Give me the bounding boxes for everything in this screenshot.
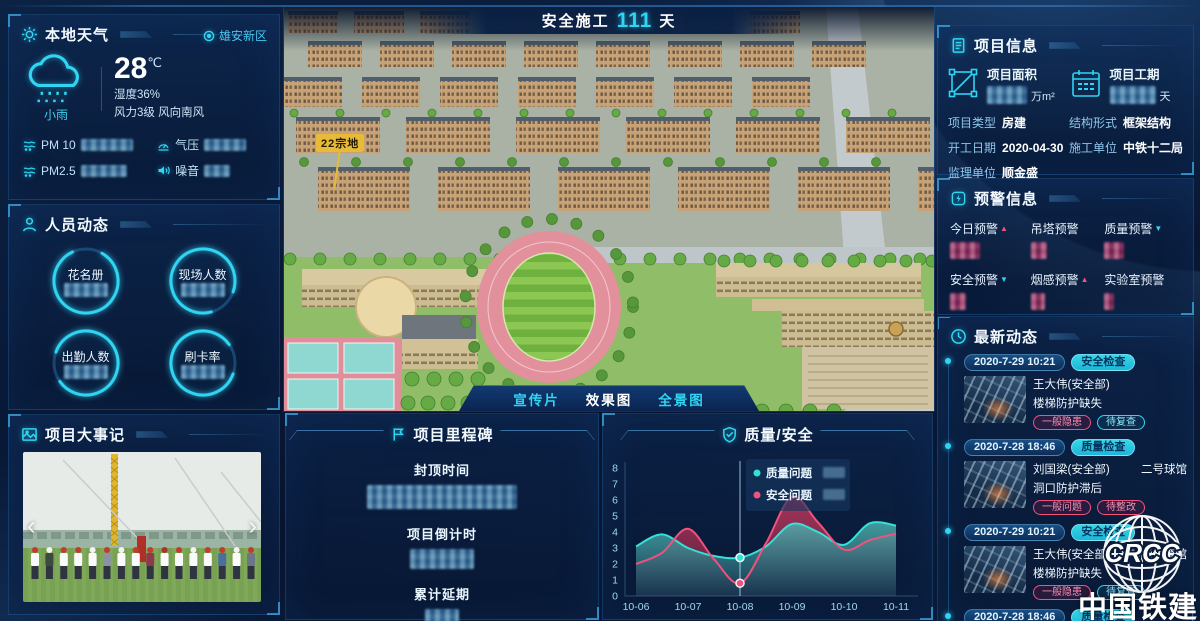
header-wing (620, 430, 715, 440)
news-entry[interactable]: 2020-7-29 10:21安全检查 王大伟(安全部)多功能体育馆 楼梯防护缺… (964, 524, 1187, 600)
alert-lab: 实验室预警 (1104, 271, 1181, 310)
panel-local-weather: 本地天气 雄安新区 小雨 28℃ 湿度36% (8, 14, 280, 200)
issue: 洞口防护滞后 (1033, 480, 1187, 496)
blurred-value (950, 242, 980, 259)
ring-swipe-rate: 刷卡率 (164, 324, 242, 402)
site-render-view[interactable]: 22宗地 安全施工 111 天 宣传片 效果图 全景图 (283, 6, 935, 412)
particles-icon (23, 164, 36, 177)
svg-text:5: 5 (612, 511, 618, 523)
news-entry[interactable]: 2020-7-28 18:46质量检查 刘国梁(安全部) (964, 609, 1187, 621)
panel-title: 质量/安全 (744, 424, 813, 445)
humidity: 湿度36% (114, 87, 204, 105)
metric-pm10: PM 10 (23, 136, 147, 153)
calendar-icon (1069, 66, 1103, 100)
news-entry[interactable]: 2020-7-28 18:46质量检查 刘国梁(安全部)二号球馆 洞口防护滞后 … (964, 439, 1187, 515)
panel-milestone: 项目里程碑 封顶时间 项目倒计时 累计延期 (285, 413, 599, 620)
severity-tag: 一般隐患 (1033, 585, 1091, 600)
metric-pressure: 气压 (157, 136, 265, 153)
inspector: 王大伟(安全部) (1033, 376, 1110, 392)
speaker-icon (157, 164, 170, 177)
panel-title: 项目信息 (974, 35, 1038, 56)
svg-text:质量问题: 质量问题 (766, 466, 812, 480)
alert-smoke: 烟感预警▲ (1031, 271, 1101, 310)
panel-quality-safety: 质量/安全 01234567810-0610-0710-0810-0910-10… (602, 413, 933, 620)
header-line (189, 434, 267, 435)
shield-check-icon (721, 426, 738, 443)
area-icon (946, 66, 980, 100)
safety-days-banner: 安全施工 111 天 (419, 7, 799, 34)
person-icon (21, 216, 38, 233)
header-wing (820, 430, 915, 440)
svg-text:1: 1 (612, 575, 618, 587)
location: 二号球馆 (1141, 461, 1187, 477)
news-entry[interactable]: 2020-7-29 10:21安全检查 王大伟(安全部) 楼梯防护缺失 一般隐患… (964, 354, 1187, 430)
location-pin-icon (203, 30, 215, 42)
inspector: 王大伟(安全部) (1033, 546, 1110, 562)
svg-text:0: 0 (612, 591, 618, 603)
header-decor (1049, 195, 1095, 202)
prev-photo-button[interactable]: ‹ (27, 513, 36, 539)
blurred-value (425, 609, 459, 621)
svg-text:10-07: 10-07 (675, 601, 702, 613)
svg-text:10-06: 10-06 (623, 601, 650, 613)
blurred-value (181, 283, 225, 297)
header-decor (120, 221, 166, 228)
alert-quality: 质量预警▼ (1104, 220, 1181, 259)
metric-noise: 噪音 (157, 162, 265, 179)
date-badge: 2020-7-29 10:21 (964, 524, 1065, 541)
rain-cloud-icon (23, 54, 89, 104)
document-icon (950, 37, 967, 54)
divider (101, 67, 102, 111)
trend-icon: ▼ (1000, 275, 1008, 284)
inspection-type-badge: 安全检查 (1071, 354, 1135, 371)
topping-date-label: 封顶时间 (286, 460, 598, 479)
chart-tooltip: 质量问题安全问题 (746, 459, 850, 511)
metric-pm25: PM2.5 (23, 162, 147, 179)
photo-thumbnail (964, 461, 1026, 508)
location-badge: 雄安新区 (203, 27, 267, 44)
alert-bolt-icon (950, 190, 967, 207)
panel-latest-news: 最新动态 2020-7-29 10:21安全检查 王大伟(安全部) 楼梯防护缺失… (937, 316, 1194, 621)
panel-title: 人员动态 (45, 214, 109, 235)
trend-icon: ▼ (1154, 224, 1162, 233)
temperature: 28℃ (114, 54, 204, 84)
photo-thumbnail (964, 546, 1026, 593)
tab-render-view[interactable]: 效果图 (586, 389, 633, 409)
blurred-value (987, 86, 1027, 104)
trend-icon: ▲ (1000, 224, 1008, 233)
svg-text:10-08: 10-08 (727, 601, 754, 613)
dashboard: 本地天气 雄安新区 小雨 28℃ 湿度36% (0, 0, 1200, 621)
panel-title: 项目大事记 (45, 424, 125, 445)
panel-personnel: 人员动态 花名册 现场人数 出勤人数 刷卡率 (8, 204, 280, 410)
blurred-value (204, 165, 230, 177)
header-decor (1049, 333, 1095, 340)
blurred-value (1031, 242, 1047, 259)
severity-tag: 一般问题 (1033, 500, 1091, 515)
header-line (1102, 45, 1181, 46)
ring-attendance-count: 出勤人数 (47, 324, 125, 402)
blurred-value (1104, 242, 1124, 259)
blurred-value (367, 485, 517, 509)
ring-roster: 花名册 (47, 242, 125, 320)
milestone-photo: ‹ › (23, 452, 261, 602)
flag-icon (390, 426, 407, 443)
status-tag: 待整改 (1097, 500, 1145, 515)
date-badge: 2020-7-29 10:21 (964, 354, 1065, 371)
svg-text:2: 2 (612, 559, 618, 571)
blurred-value (64, 283, 108, 297)
gauge-icon (157, 138, 170, 151)
location: 多功能体育馆 (1118, 546, 1187, 562)
field-structure-type: 结构形式框架结构 (1069, 114, 1183, 131)
alert-tower-crane: 吊塔预警 (1031, 220, 1101, 259)
field-project-type: 项目类型房建 (948, 114, 1065, 131)
stat-project-duration: 项目工期 天 (1069, 64, 1186, 104)
ring-onsite-count: 现场人数 (164, 242, 242, 320)
blurred-value (1104, 293, 1114, 310)
header-decor (1049, 42, 1095, 49)
svg-text:10-11: 10-11 (883, 601, 909, 613)
blurred-value (1110, 86, 1156, 104)
blurred-value (950, 293, 966, 310)
blurred-value (410, 549, 474, 569)
clock-icon (950, 328, 967, 345)
blurred-value (204, 139, 246, 151)
svg-text:7: 7 (612, 479, 618, 491)
weather-condition: 小雨 (23, 106, 89, 123)
field-contractor: 施工单位中铁十二局 (1069, 139, 1183, 156)
header-line (173, 224, 267, 225)
panel-title: 最新动态 (974, 326, 1038, 347)
wind: 风力3级 风向南风 (114, 105, 204, 123)
photo-icon (21, 426, 38, 443)
view-tabs: 宣传片 效果图 全景图 (459, 385, 759, 411)
header-wing (290, 430, 385, 440)
svg-text:10-09: 10-09 (779, 601, 806, 613)
next-photo-button[interactable]: › (248, 513, 257, 539)
date-badge: 2020-7-28 18:46 (964, 609, 1065, 621)
blurred-value (64, 365, 108, 379)
parcel-label: 22宗地 (316, 134, 364, 152)
header-line (1102, 198, 1181, 199)
panel-title: 项目里程碑 (413, 424, 493, 445)
photo-thumbnail (964, 376, 1026, 423)
header-decor (120, 31, 166, 38)
svg-text:10-10: 10-10 (831, 601, 858, 613)
date-badge: 2020-7-28 18:46 (964, 439, 1065, 456)
severity-tag: 一般隐患 (1033, 415, 1091, 430)
svg-text:4: 4 (612, 527, 618, 539)
tab-promo-video[interactable]: 宣传片 (513, 389, 560, 409)
panel-alerts: 预警信息 今日预警▲ 吊塔预警 质量预警▼ 安全预警▼ 烟感预警▲ 实验室预警 (937, 178, 1194, 315)
quality-safety-chart[interactable]: 01234567810-0610-0710-0810-0910-1010-11质… (603, 447, 932, 617)
inspection-type-badge: 质量检查 (1071, 609, 1135, 621)
alert-safety: 安全预警▼ (950, 271, 1027, 310)
alert-today: 今日预警▲ (950, 220, 1027, 259)
issue: 楼梯防护缺失 (1033, 395, 1187, 411)
blurred-value (81, 165, 127, 177)
issue: 楼梯防护缺失 (1033, 565, 1187, 581)
countdown-label: 项目倒计时 (286, 524, 598, 543)
blurred-value (81, 139, 133, 151)
svg-text:安全问题: 安全问题 (766, 488, 812, 502)
blurred-value (181, 365, 225, 379)
status-tag: 待复查 (1097, 585, 1145, 600)
header-wing (500, 430, 595, 440)
header-decor (136, 431, 182, 438)
panel-project-info: 项目信息 项目面积 万m² 项目工期 天 项目类型房建 结构形式 (937, 25, 1194, 175)
svg-text:8: 8 (612, 463, 618, 475)
trend-icon: ▲ (1081, 275, 1089, 284)
status-tag: 待复查 (1097, 415, 1145, 430)
header-line (1102, 336, 1181, 337)
particles-icon (23, 138, 36, 151)
tab-panorama[interactable]: 全景图 (658, 389, 705, 409)
field-start-date: 开工日期2020-04-30 (948, 139, 1065, 156)
news-timeline: 2020-7-29 10:21安全检查 王大伟(安全部) 楼梯防护缺失 一般隐患… (938, 352, 1193, 621)
sun-icon (21, 26, 38, 43)
inspection-type-badge: 质量检查 (1071, 439, 1135, 456)
panel-project-milestone-events: 项目大事记 ‹ › (8, 414, 280, 615)
stat-project-area: 项目面积 万m² (946, 64, 1063, 104)
delay-label: 累计延期 (286, 584, 598, 603)
panel-title: 预警信息 (974, 188, 1038, 209)
svg-text:6: 6 (612, 495, 618, 507)
svg-text:3: 3 (612, 543, 618, 555)
blurred-value (1031, 293, 1045, 310)
panel-title: 本地天气 (45, 24, 109, 45)
inspection-type-badge: 安全检查 (1071, 524, 1135, 541)
inspector: 刘国梁(安全部) (1033, 461, 1110, 477)
